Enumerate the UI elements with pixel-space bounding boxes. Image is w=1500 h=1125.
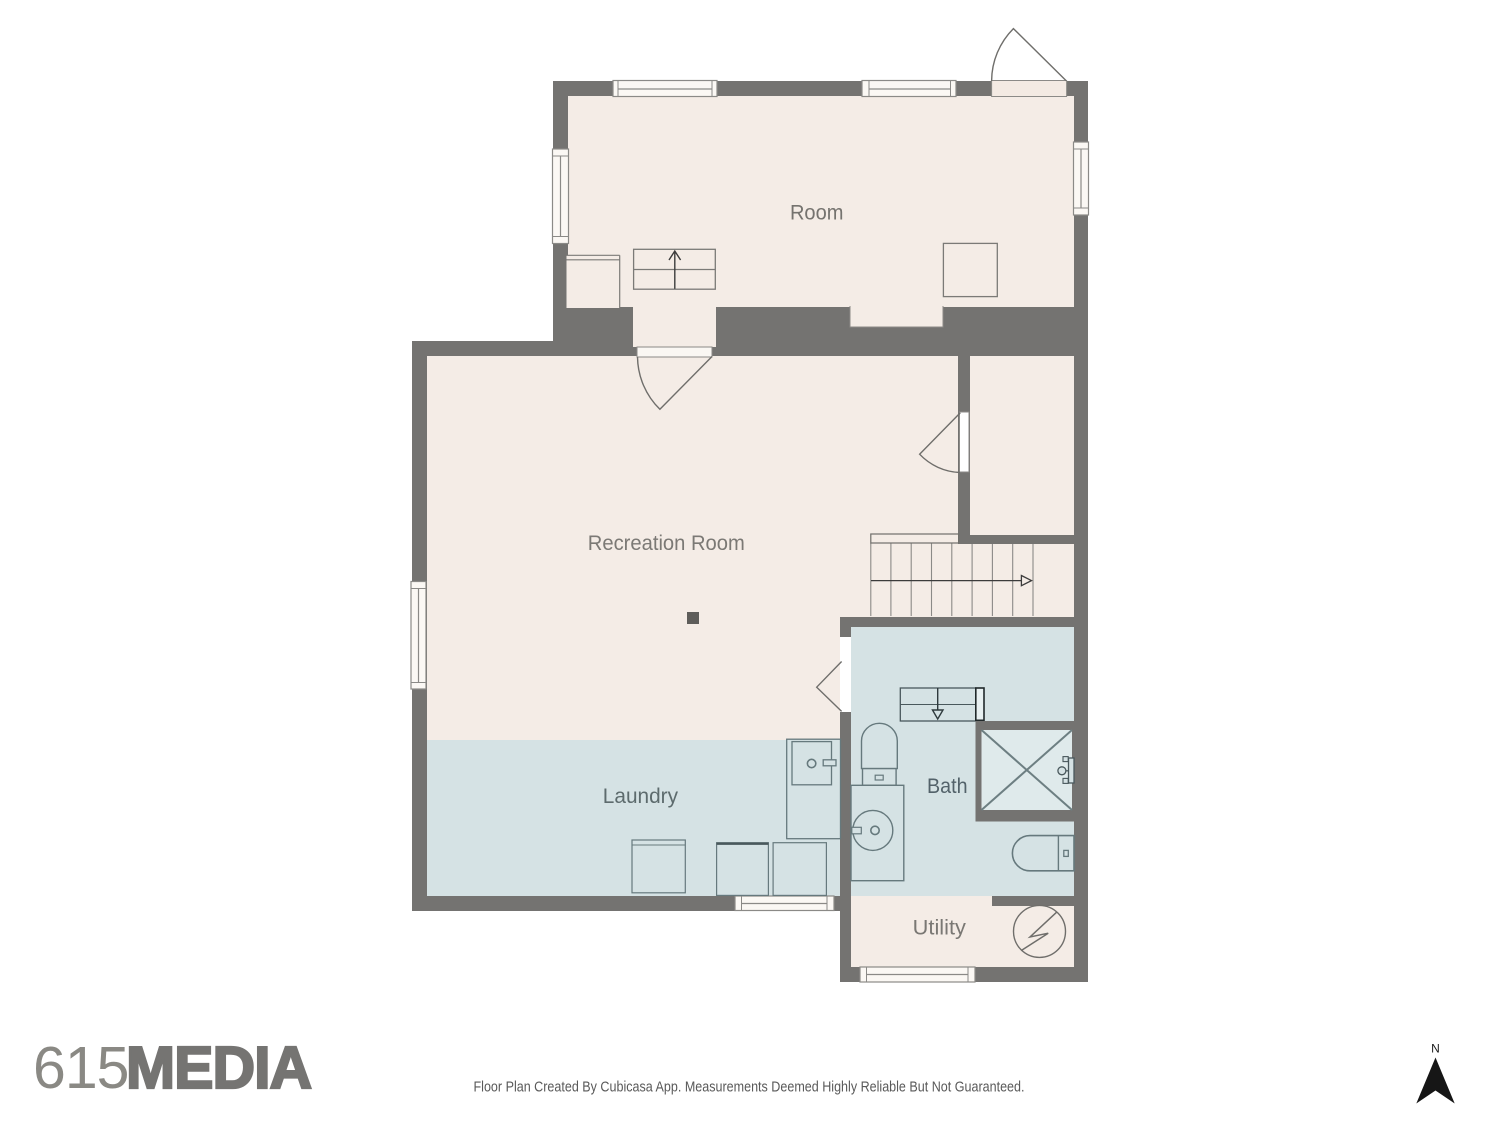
svg-text:Recreation Room: Recreation Room — [588, 532, 745, 555]
svg-text:MEDIA: MEDIA — [126, 1035, 312, 1101]
svg-text:Laundry: Laundry — [603, 785, 679, 808]
svg-text:615: 615 — [33, 1035, 128, 1101]
svg-text:Utility: Utility — [913, 916, 967, 939]
svg-text:N: N — [1431, 1042, 1440, 1056]
svg-text:Floor Plan Created By Cubicasa: Floor Plan Created By Cubicasa App. Meas… — [474, 1079, 1025, 1096]
svg-text:Room: Room — [790, 201, 844, 224]
svg-text:Bath: Bath — [927, 775, 968, 798]
